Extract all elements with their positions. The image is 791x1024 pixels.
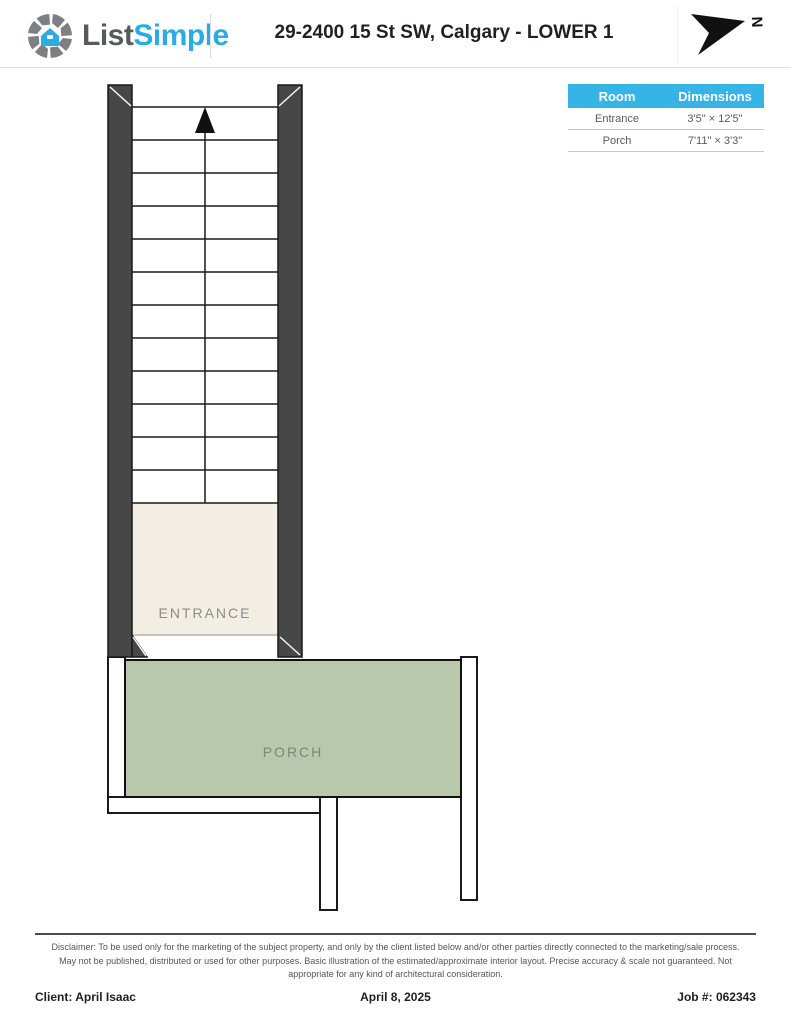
client-name: Client: April Isaac xyxy=(35,990,275,1004)
document-date: April 8, 2025 xyxy=(275,990,515,1004)
floorplan-sheet: ListSimple 29-2400 15 St SW, Calgary - L… xyxy=(0,0,791,1024)
floorplan-drawing xyxy=(0,0,791,1024)
disclaimer-text: Disclaimer: To be used only for the mark… xyxy=(45,941,746,982)
footer-info-row: Client: April Isaac April 8, 2025 Job #:… xyxy=(35,990,756,1004)
porch-room xyxy=(125,660,461,797)
porch-label: PORCH xyxy=(213,744,373,760)
entrance-label: ENTRANCE xyxy=(125,605,285,621)
footer-rule xyxy=(35,933,756,935)
job-number: Job #: 062343 xyxy=(516,990,756,1004)
